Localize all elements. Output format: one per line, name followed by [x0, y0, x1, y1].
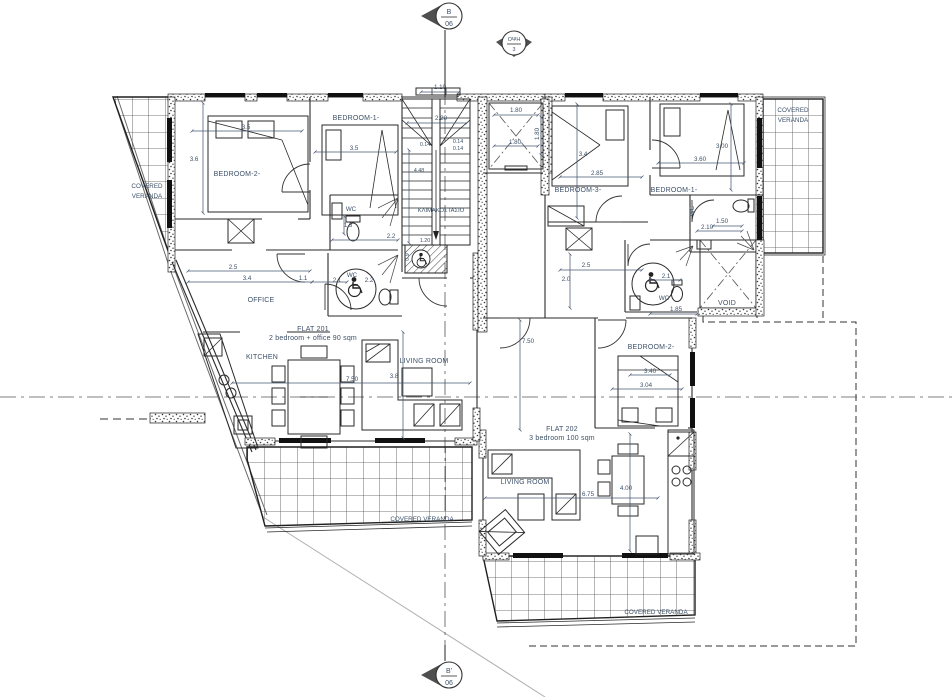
- flat202-desc: 3 bedroom 100 sqm: [529, 435, 595, 442]
- shower: [676, 246, 693, 266]
- wall-hatch-patch: [150, 413, 205, 423]
- section-sheet: 06: [445, 21, 453, 28]
- dim: 2.85: [591, 170, 604, 177]
- flat202-name: FLAT 202: [546, 426, 578, 433]
- elevation-marker: ΟΨΗ 3: [496, 31, 532, 57]
- dim: 6.75: [582, 491, 595, 498]
- room-label-wc-202: WC: [689, 205, 696, 216]
- toilet: [672, 287, 683, 302]
- dim: 1.50: [716, 218, 729, 225]
- veranda-label: COVERED: [131, 183, 163, 190]
- floor-plan-drawing: COVERED VERANDA COVERED VERANDA COVERED …: [0, 0, 952, 697]
- furniture-202: [479, 104, 744, 554]
- dim: 7.50: [522, 338, 535, 345]
- shower: [378, 198, 398, 226]
- window: [690, 352, 695, 386]
- coffee-table: [402, 368, 432, 396]
- room-label-bedroom1-201: BEDROOM-1-: [333, 115, 380, 122]
- dim: 4.00: [620, 485, 633, 492]
- veranda-label: VERANDA: [778, 117, 809, 124]
- veranda-label: COVERED: [777, 107, 809, 114]
- room-label-bedroom3-202: BEDROOM-3-: [555, 187, 602, 194]
- room-label-wc-access-201: WC: [347, 272, 358, 279]
- room-label-living-201: LIVING ROOM: [400, 358, 449, 365]
- dim: 1.80: [509, 139, 522, 146]
- dim: 3.04: [640, 382, 653, 389]
- stair-direction-arrow: [433, 231, 439, 240]
- dim: 3.8: [390, 373, 399, 380]
- dim: 2.0: [562, 276, 571, 283]
- dim: 1.3: [344, 222, 353, 229]
- section-code: B': [446, 668, 452, 675]
- window: [279, 438, 331, 443]
- room-label-wc-access-202: WC: [659, 295, 670, 302]
- section-marker-bottom: B' 06: [421, 645, 462, 688]
- flat201-name: FLAT 201: [297, 326, 329, 333]
- elevation-sheet: 3: [513, 47, 516, 53]
- wheelchair-icon: [646, 272, 660, 291]
- window: [257, 93, 287, 97]
- dim: 2.20: [435, 115, 448, 122]
- bed: [660, 104, 744, 176]
- flat201-desc: 2 bedroom + office 90 sqm: [269, 335, 357, 342]
- dim: 0.14: [420, 142, 430, 148]
- room-label-living-202: LIVING ROOM: [501, 479, 550, 486]
- veranda-label: VERANDA: [132, 193, 163, 200]
- veranda-top-left: [113, 97, 172, 262]
- window: [167, 118, 172, 162]
- dim: 3.5: [350, 145, 359, 152]
- veranda-bottom-201: [247, 447, 472, 526]
- dim: 3.6: [190, 156, 199, 163]
- window: [690, 398, 695, 428]
- floor-plan-sheet: COVERED VERANDA COVERED VERANDA COVERED …: [0, 0, 952, 697]
- dim: 4.48: [414, 168, 424, 174]
- window: [565, 93, 603, 97]
- dim: 2.2: [365, 277, 374, 284]
- section-marker-top: B 06: [421, 3, 462, 97]
- dim: 3.4: [243, 275, 252, 282]
- dim: 1.20: [420, 238, 430, 244]
- dim: 2.10: [701, 224, 714, 231]
- void-label: VOID: [718, 300, 736, 307]
- dim: 3.60: [694, 156, 707, 163]
- doors: [277, 140, 714, 348]
- veranda-label: COVERED VERANDA: [390, 516, 454, 523]
- dim: 2.5: [582, 262, 591, 269]
- room-label-bedroom2-201: BEDROOM-2-: [214, 171, 261, 178]
- veranda-label: COVERED VERANDA: [624, 609, 688, 616]
- section-sheet: 06: [445, 680, 453, 687]
- dim: 2.5: [229, 264, 238, 271]
- window: [375, 438, 425, 443]
- window: [757, 196, 762, 240]
- wheelchair-icon: [349, 277, 363, 296]
- window: [167, 180, 172, 228]
- room-label-office: OFFICE: [248, 297, 275, 304]
- dim: 2.1: [662, 273, 671, 280]
- window: [513, 553, 563, 558]
- dim: 0.9: [405, 253, 411, 260]
- dim: 3.40: [644, 368, 657, 375]
- bed: [618, 356, 678, 426]
- dim: 3.5: [242, 124, 251, 131]
- dim: 0.14: [453, 139, 463, 145]
- dining-table: [612, 456, 644, 504]
- room-label-bedroom1-202: BEDROOM-1-: [651, 187, 698, 194]
- dim: 7.50: [346, 376, 359, 383]
- kitchen-island: [636, 536, 658, 554]
- stair-label: ΚΛΙΜΑΚΟΣΤΑΣΙΟ: [418, 208, 465, 214]
- dim: 3.00: [716, 143, 729, 150]
- room-label-wc-201: WC: [346, 206, 357, 213]
- interior-walls: [175, 97, 763, 441]
- dim: 1.1: [299, 275, 308, 282]
- shower: [378, 255, 398, 283]
- window: [700, 93, 738, 97]
- dim: 1.85: [670, 306, 683, 313]
- dim: 2.1: [333, 277, 342, 284]
- dim: 1.80: [510, 107, 523, 114]
- bed: [322, 125, 398, 215]
- toilet: [379, 289, 391, 305]
- toilet: [733, 200, 749, 212]
- kitchen-counter: [198, 334, 258, 448]
- dim: 1.80: [534, 127, 541, 140]
- bed: [208, 116, 308, 212]
- window: [205, 93, 245, 97]
- elevation-code: ΟΨΗ: [508, 37, 521, 43]
- room-label-bedroom2-202: BEDROOM-2-: [628, 344, 675, 351]
- window: [757, 118, 762, 168]
- room-label-kitchen: KITCHEN: [246, 354, 278, 361]
- dim: 2.2: [387, 233, 396, 240]
- dim: 0.14: [453, 146, 463, 152]
- window: [328, 93, 363, 97]
- section-code: B: [447, 9, 452, 16]
- dim: 3.4: [579, 151, 588, 158]
